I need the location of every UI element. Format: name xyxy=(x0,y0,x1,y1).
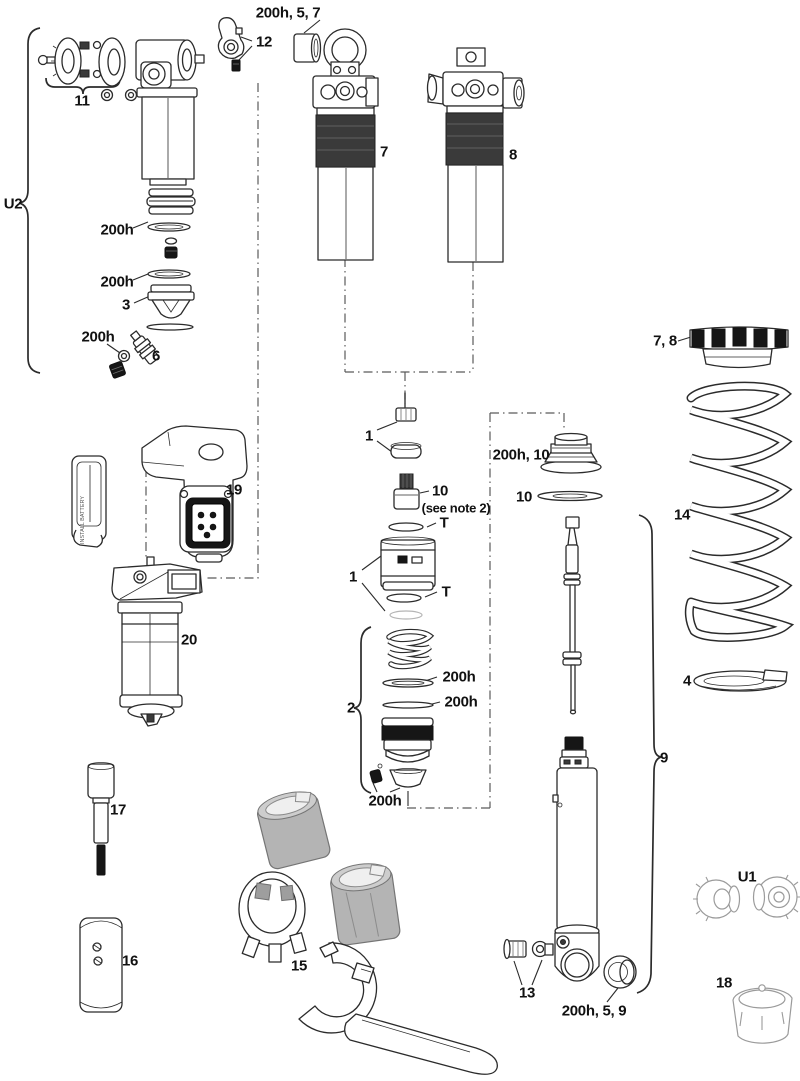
label-2: 2 xyxy=(347,700,355,717)
label-12: 12 xyxy=(256,34,272,51)
label-u1: U1 xyxy=(738,869,757,886)
label-3: 3 xyxy=(122,297,130,314)
sealhead-cups-10 xyxy=(538,434,602,501)
remote-lever-12 xyxy=(218,18,243,71)
label-14: 14 xyxy=(674,507,690,524)
damper-body-9 xyxy=(553,737,599,981)
label-8: 8 xyxy=(509,147,517,164)
label-7-8: 7, 8 xyxy=(653,333,677,350)
valve-parts-13 xyxy=(504,940,553,959)
battery-pack xyxy=(72,456,106,547)
label-200h-e: 200h xyxy=(445,694,478,711)
label-10-b: 10 xyxy=(516,489,532,506)
label-see-note-2: (see note 2) xyxy=(422,501,491,516)
spring-seat-4 xyxy=(694,670,787,691)
label-19: 19 xyxy=(226,482,242,499)
label-4: 4 xyxy=(683,673,691,690)
coil-spring-14 xyxy=(689,386,785,637)
piston-group-2 xyxy=(370,632,433,787)
label-16: 16 xyxy=(122,953,138,970)
damper-shaft-9 xyxy=(563,517,581,714)
aircan-valve-body-1 xyxy=(381,537,435,619)
label-9: 9 xyxy=(660,750,668,767)
label-15: 15 xyxy=(291,958,307,975)
label-200h-b: 200h xyxy=(101,274,134,291)
label-13: 13 xyxy=(519,985,535,1002)
mounting-hardware-11 xyxy=(39,38,137,101)
block-tool-16 xyxy=(80,918,122,1012)
label-6: 6 xyxy=(152,348,160,365)
eyelet-bushing xyxy=(604,956,636,988)
diagram-artwork: INSTALL BATTERY xyxy=(0,0,800,1081)
label-t-top: T xyxy=(440,515,449,532)
damper-assembly-u2 xyxy=(136,40,204,214)
label-18: 18 xyxy=(716,975,732,992)
shock-assembly-7 xyxy=(313,29,378,260)
label-1-bottom: 1 xyxy=(349,569,357,586)
bottom-out-bumper xyxy=(294,34,321,62)
label-t-bottom: T xyxy=(442,584,451,601)
label-20: 20 xyxy=(181,632,197,649)
aircan-tools-15 xyxy=(239,786,497,1074)
label-7: 7 xyxy=(380,144,388,161)
brace-9 xyxy=(637,515,661,993)
spanner-wrench xyxy=(299,942,497,1074)
label-200h-5-7: 200h, 5, 7 xyxy=(256,5,321,22)
label-200h-c: 200h xyxy=(82,329,115,346)
label-200h-d: 200h xyxy=(443,669,476,686)
label-10-a: 10 xyxy=(432,483,448,500)
preload-collar xyxy=(690,327,788,368)
label-200h-5-9: 200h, 5, 9 xyxy=(562,1003,627,1020)
label-u2: U2 xyxy=(4,196,23,213)
label-11: 11 xyxy=(74,93,89,110)
label-200h-a: 200h xyxy=(101,222,134,239)
shaft-clamp-tool-17 xyxy=(88,763,114,876)
aircan-stack-top xyxy=(389,393,423,531)
socket-tool-18 xyxy=(733,985,792,1043)
battery-print: INSTALL BATTERY xyxy=(80,496,86,544)
label-200h-10: 200h, 10 xyxy=(493,447,550,464)
label-1-top: 1 xyxy=(365,428,373,445)
label-17: 17 xyxy=(110,802,126,819)
label-200h-f: 200h xyxy=(369,793,402,810)
exploded-parts-diagram: INSTALL BATTERY 200h, 5, 7 12 11 U2 200h… xyxy=(0,0,800,1081)
brace-2 xyxy=(354,627,371,793)
